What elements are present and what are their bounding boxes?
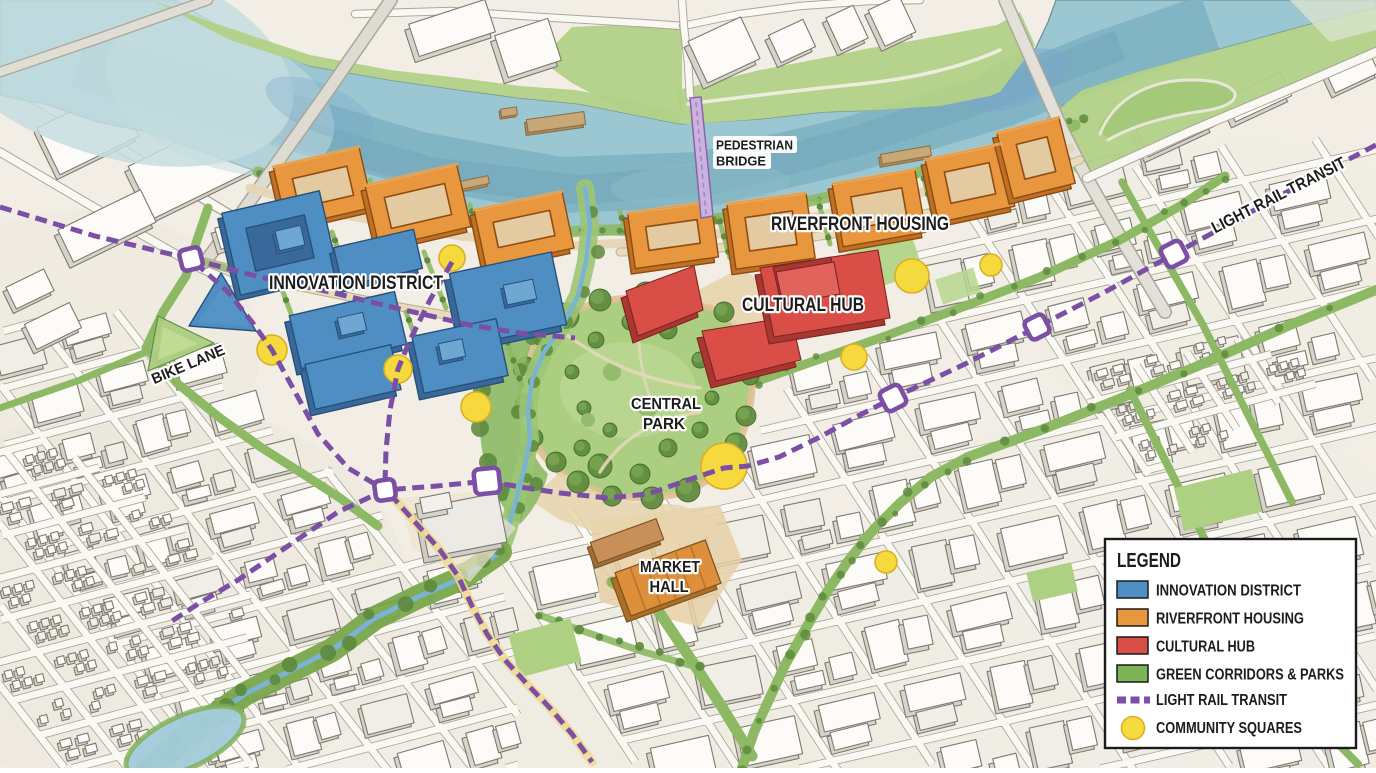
svg-text:CENTRAL: CENTRAL <box>631 396 701 413</box>
svg-text:CULTURAL HUB: CULTURAL HUB <box>1156 639 1255 656</box>
svg-text:LEGEND: LEGEND <box>1117 550 1181 572</box>
svg-text:MARKET: MARKET <box>640 559 700 576</box>
svg-text:INNOVATION DISTRICT: INNOVATION DISTRICT <box>1156 583 1301 600</box>
svg-text:RIVERFRONT HOUSING: RIVERFRONT HOUSING <box>1156 611 1304 628</box>
svg-text:BRIDGE: BRIDGE <box>716 155 766 169</box>
svg-text:CULTURAL HUB: CULTURAL HUB <box>742 295 864 316</box>
svg-text:PARK: PARK <box>643 416 685 433</box>
svg-text:LIGHT RAIL TRANSIT: LIGHT RAIL TRANSIT <box>1156 692 1287 709</box>
svg-text:PEDESTRIAN: PEDESTRIAN <box>716 139 793 153</box>
svg-text:INNOVATION DISTRICT: INNOVATION DISTRICT <box>269 273 443 294</box>
svg-text:COMMUNITY SQUARES: COMMUNITY SQUARES <box>1156 720 1302 737</box>
svg-text:RIVERFRONT HOUSING: RIVERFRONT HOUSING <box>771 214 949 235</box>
svg-text:GREEN CORRIDORS & PARKS: GREEN CORRIDORS & PARKS <box>1156 667 1344 684</box>
svg-text:HALL: HALL <box>650 579 689 596</box>
